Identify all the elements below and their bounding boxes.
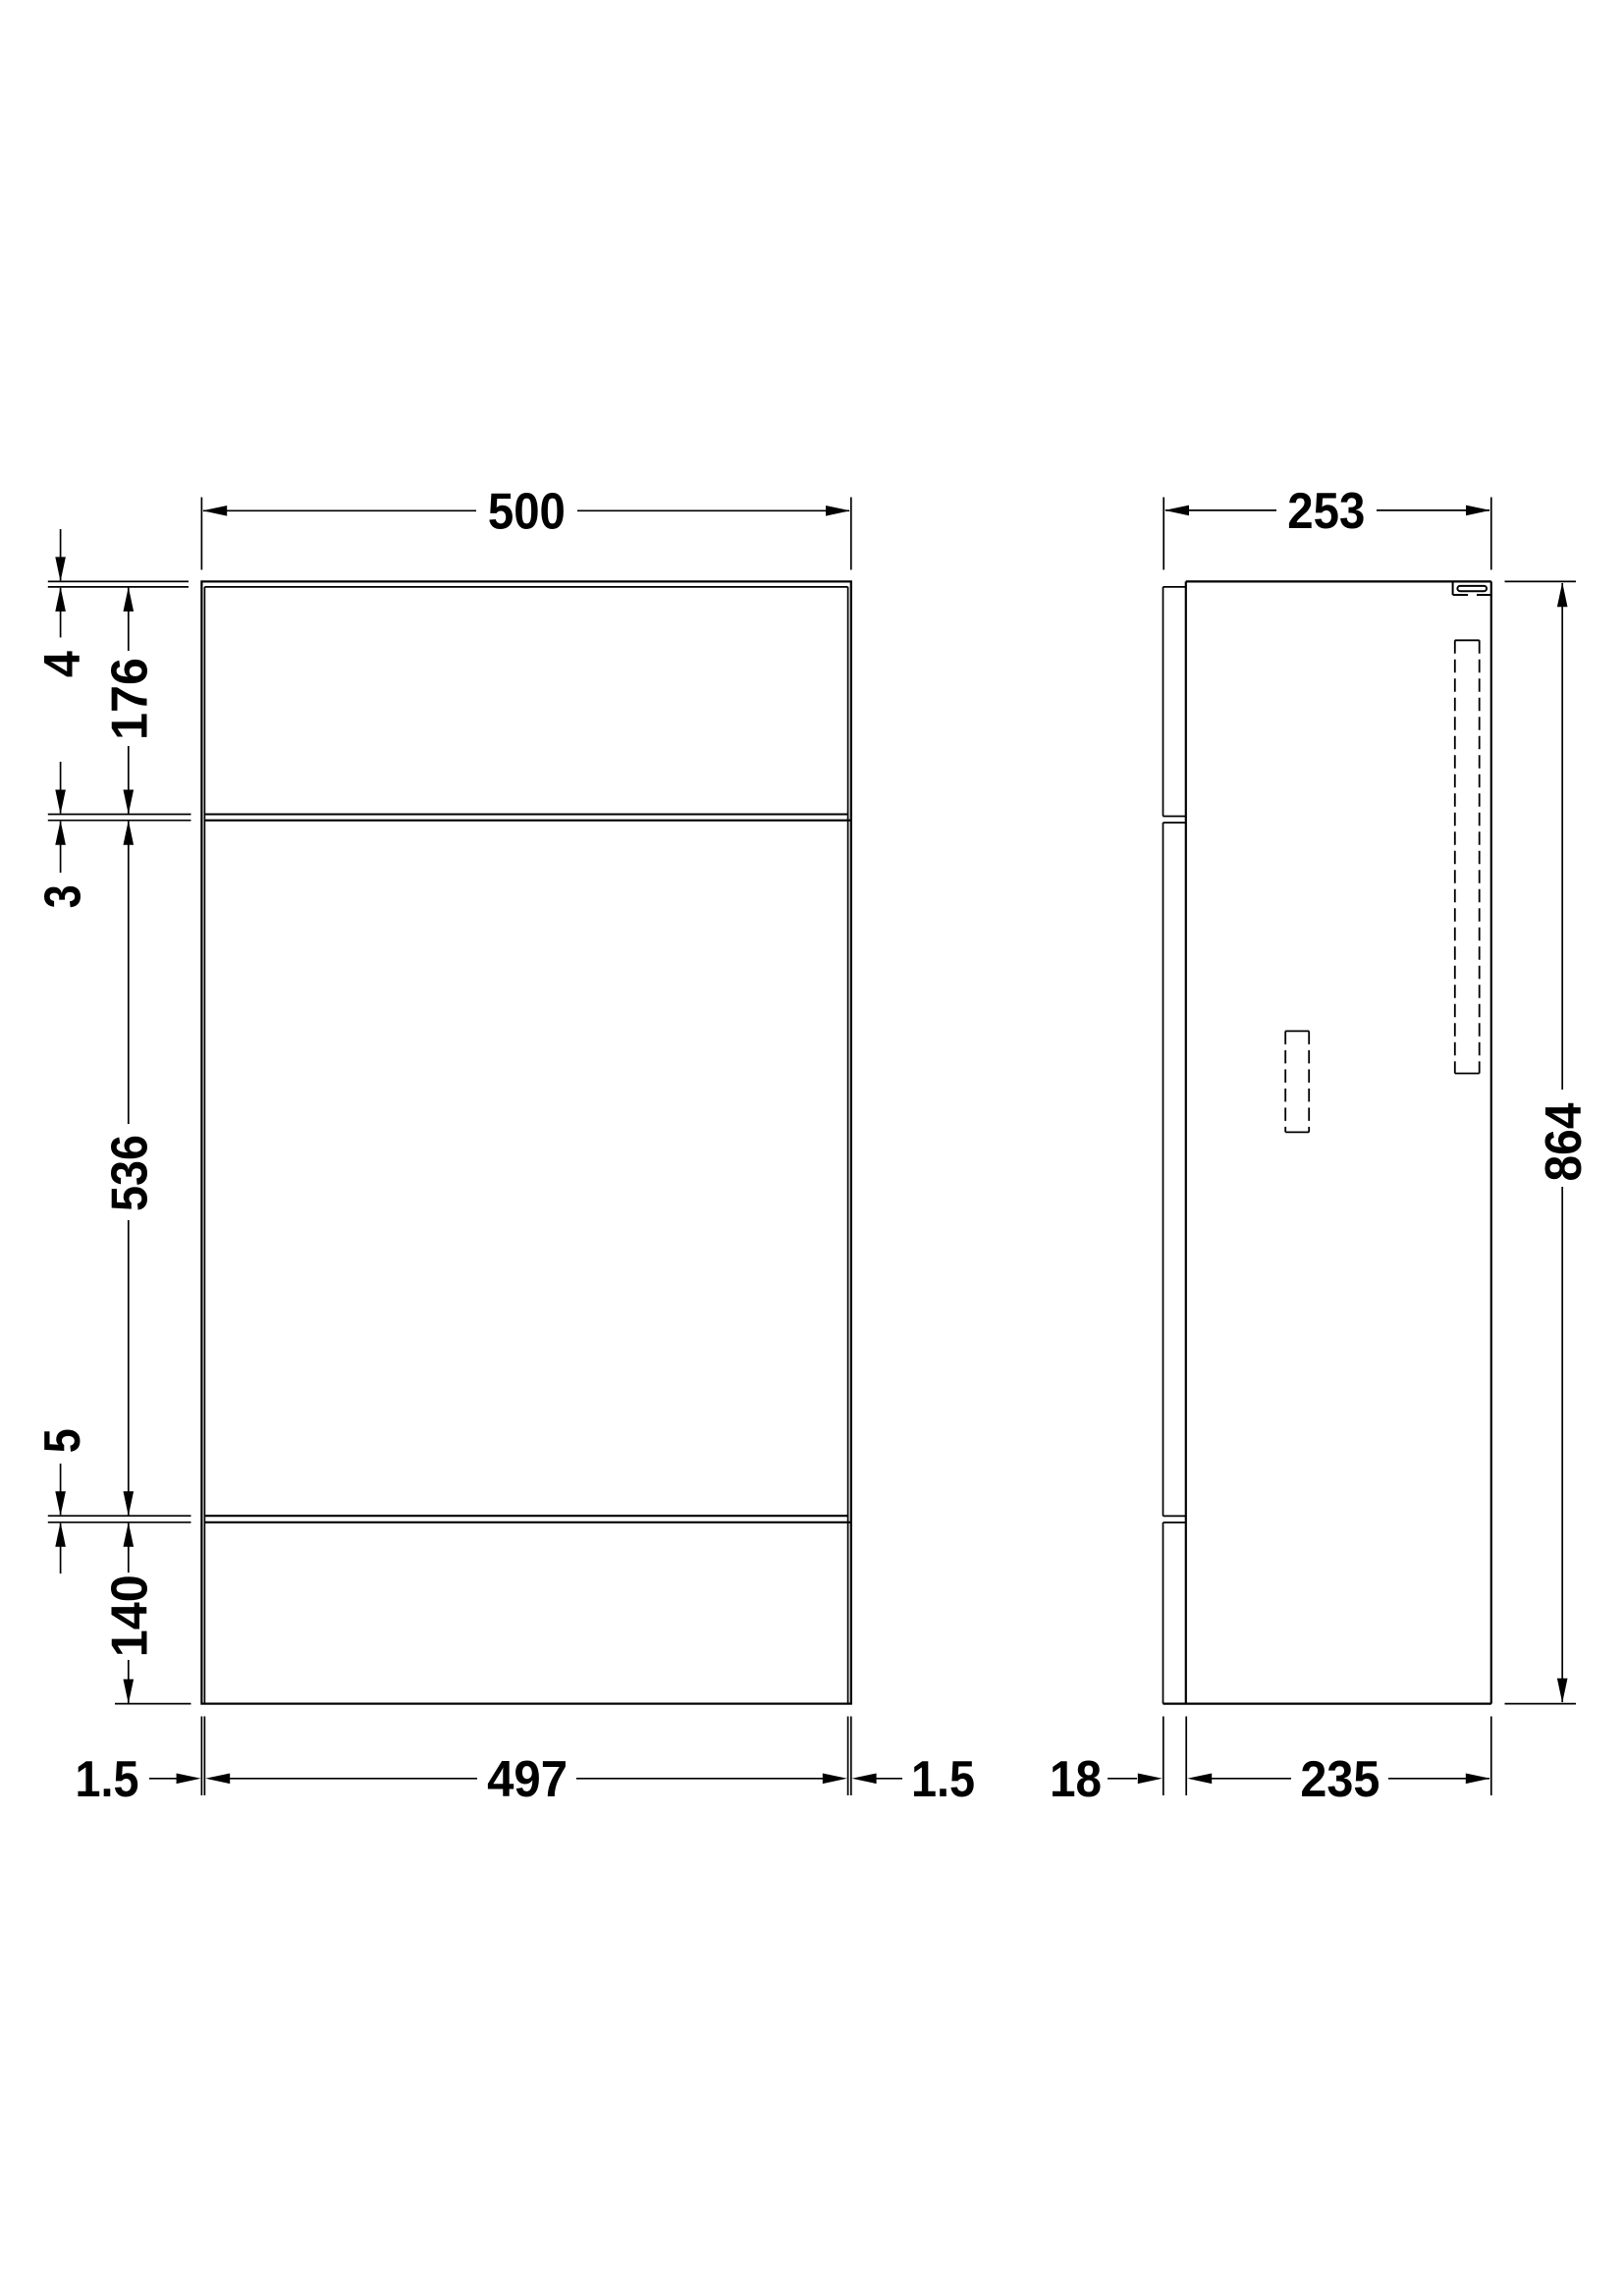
svg-text:1.5: 1.5 [76, 1751, 139, 1808]
svg-text:140: 140 [101, 1575, 158, 1657]
svg-text:176: 176 [101, 658, 158, 740]
svg-text:18: 18 [1050, 1751, 1102, 1808]
svg-text:4: 4 [34, 651, 91, 677]
svg-text:3: 3 [35, 884, 92, 908]
svg-text:536: 536 [101, 1135, 158, 1211]
svg-text:235: 235 [1300, 1751, 1380, 1808]
svg-text:500: 500 [488, 483, 566, 540]
svg-text:5: 5 [34, 1428, 91, 1453]
svg-text:1.5: 1.5 [911, 1751, 975, 1808]
svg-text:253: 253 [1287, 483, 1365, 540]
svg-text:497: 497 [487, 1751, 568, 1808]
svg-text:864: 864 [1536, 1102, 1593, 1181]
